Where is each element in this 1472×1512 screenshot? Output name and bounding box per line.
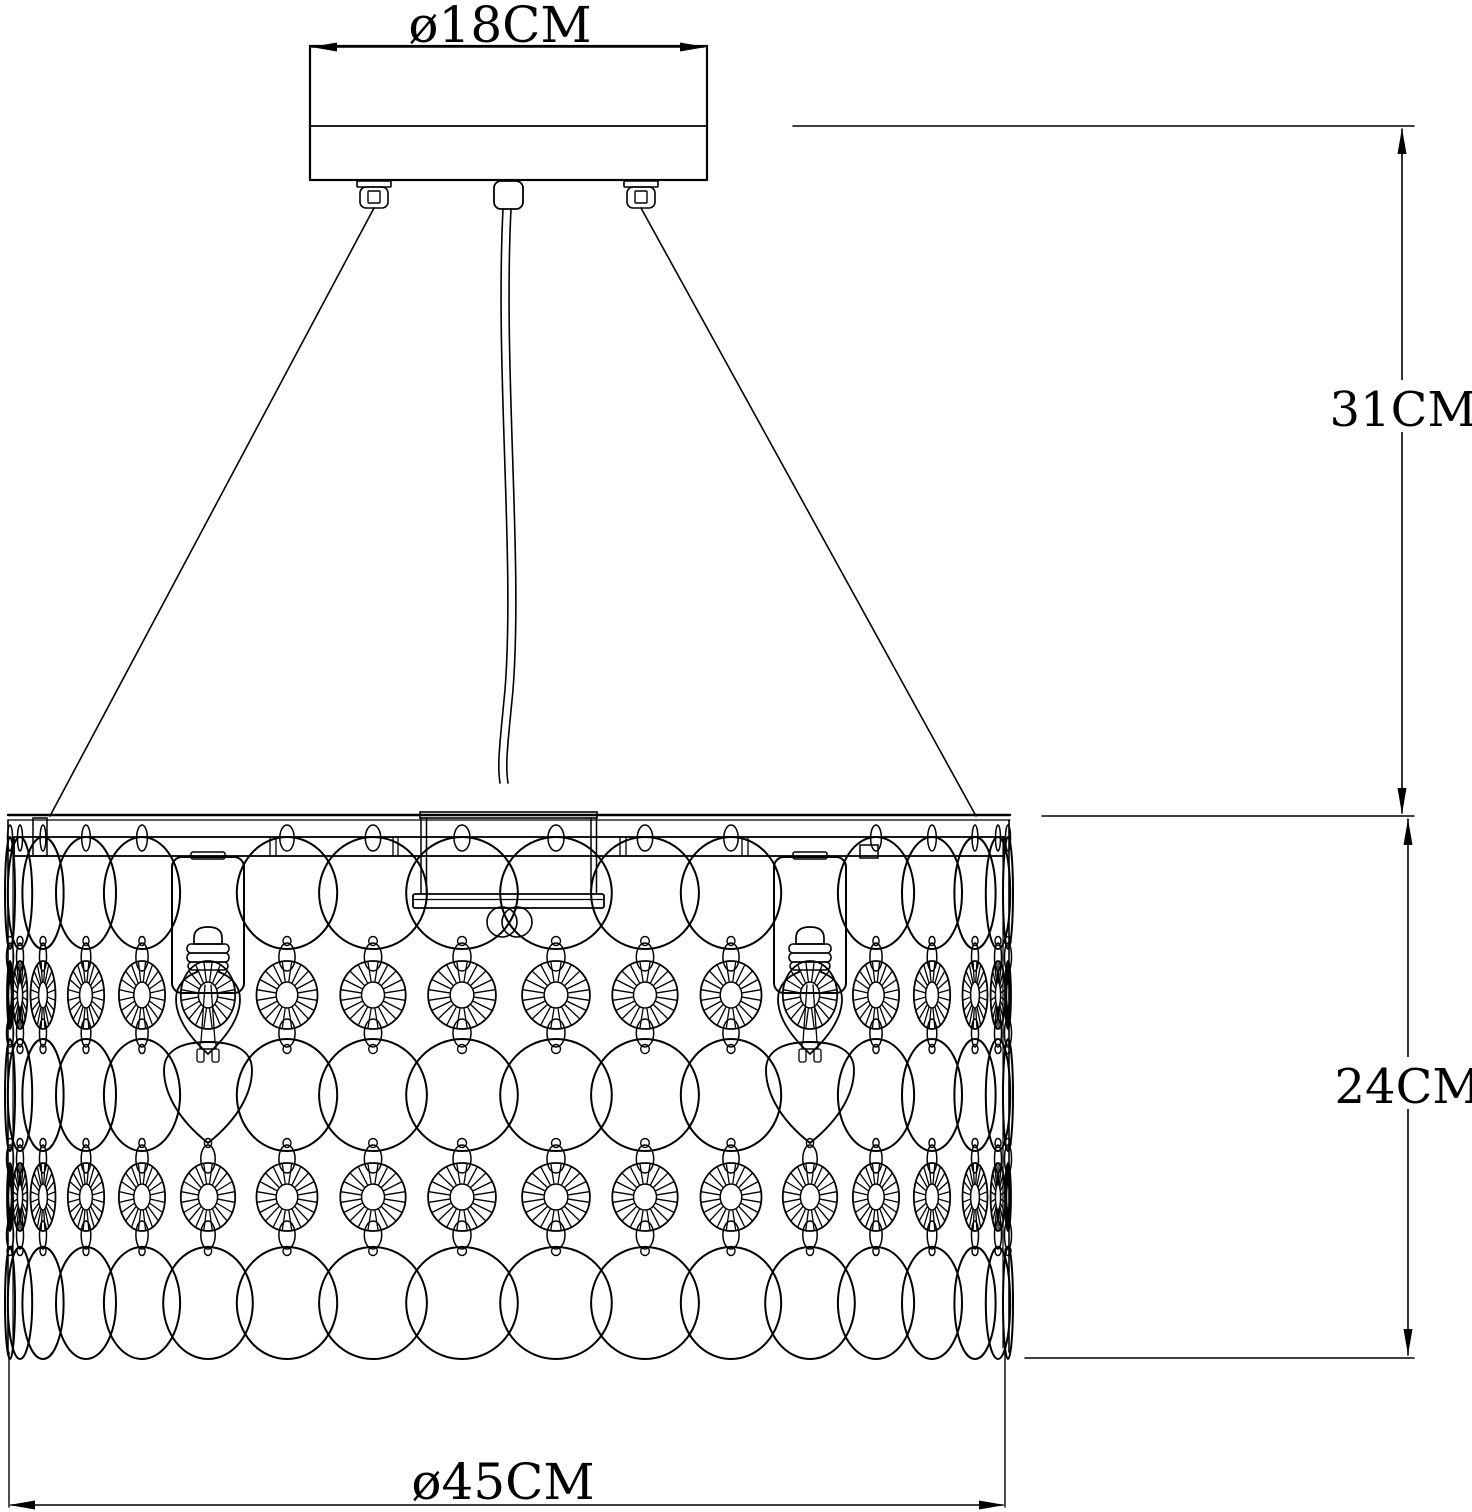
- drum-shade: [5, 812, 1013, 1359]
- crystal-column: [765, 961, 855, 1359]
- bulb-sockets: [164, 852, 854, 1143]
- bulb-socket-assembly: [164, 852, 252, 1143]
- canopy-diameter-label: ø18CM: [408, 0, 591, 54]
- suspension-wires: [50, 208, 976, 816]
- bulb-socket-assembly: [766, 852, 854, 1143]
- crystal-column: [163, 961, 253, 1359]
- center-hub: [413, 812, 604, 937]
- pendant-lamp-dimension-drawing: ø18CM 31CM 24CM ø45CM: [0, 0, 1472, 1512]
- crystal-column: [237, 825, 337, 1359]
- technical-drawing-page: ø18CM 31CM 24CM ø45CM: [0, 0, 1472, 1512]
- dimension-lines: [9, 126, 1414, 1510]
- shade-height-label: 24CM: [1335, 1059, 1472, 1115]
- shade-diameter-label: ø45CM: [411, 1453, 594, 1511]
- crystal-column: [8, 825, 32, 1359]
- crystal-column: [986, 825, 1010, 1359]
- dimension-labels: ø18CM 31CM 24CM ø45CM: [408, 0, 1472, 1511]
- crystal-column: [1003, 825, 1013, 1359]
- hanging-drop-label: 31CM: [1330, 382, 1472, 438]
- ceiling-canopy: [310, 43, 707, 210]
- crystal-column: [681, 825, 781, 1359]
